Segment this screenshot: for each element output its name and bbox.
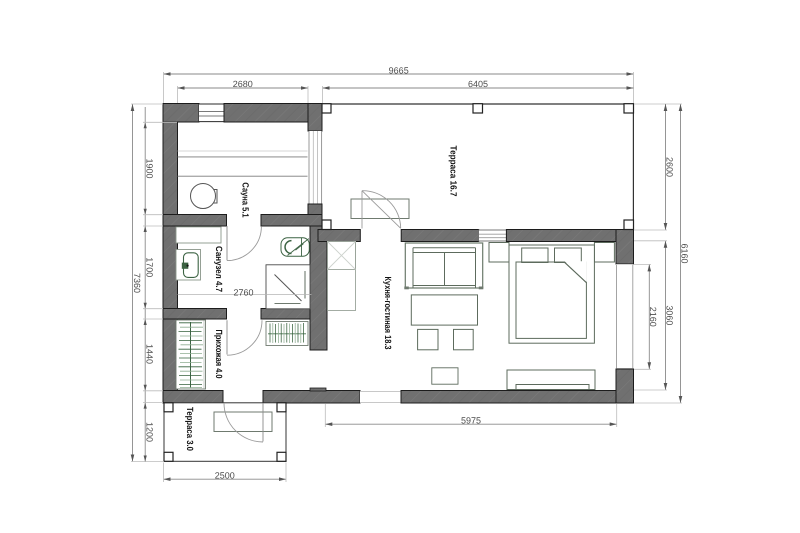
svg-text:Терраса 3.0: Терраса 3.0 [185,407,195,451]
svg-text:1900: 1900 [145,158,155,178]
svg-text:5975: 5975 [461,415,481,425]
svg-text:2760: 2760 [233,288,253,298]
svg-text:Санузел 4.7: Санузел 4.7 [214,246,224,292]
svg-text:6405: 6405 [468,79,488,89]
svg-text:1200: 1200 [145,422,155,442]
svg-text:3060: 3060 [664,305,674,325]
svg-text:2680: 2680 [233,79,253,89]
svg-text:Прихожая 4.0: Прихожая 4.0 [214,329,224,378]
svg-text:7360: 7360 [132,273,142,293]
svg-text:1700: 1700 [145,257,155,277]
svg-text:9665: 9665 [389,65,409,75]
svg-text:Сауна 5.1: Сауна 5.1 [240,182,250,217]
svg-text:Терраса 16.7: Терраса 16.7 [448,146,458,197]
svg-text:2500: 2500 [215,470,235,480]
svg-text:2160: 2160 [648,307,658,327]
svg-text:Кухня-гостиная 18.3: Кухня-гостиная 18.3 [383,277,393,350]
svg-text:6160: 6160 [679,243,689,263]
svg-text:1440: 1440 [145,344,155,364]
svg-text:2600: 2600 [664,157,674,177]
